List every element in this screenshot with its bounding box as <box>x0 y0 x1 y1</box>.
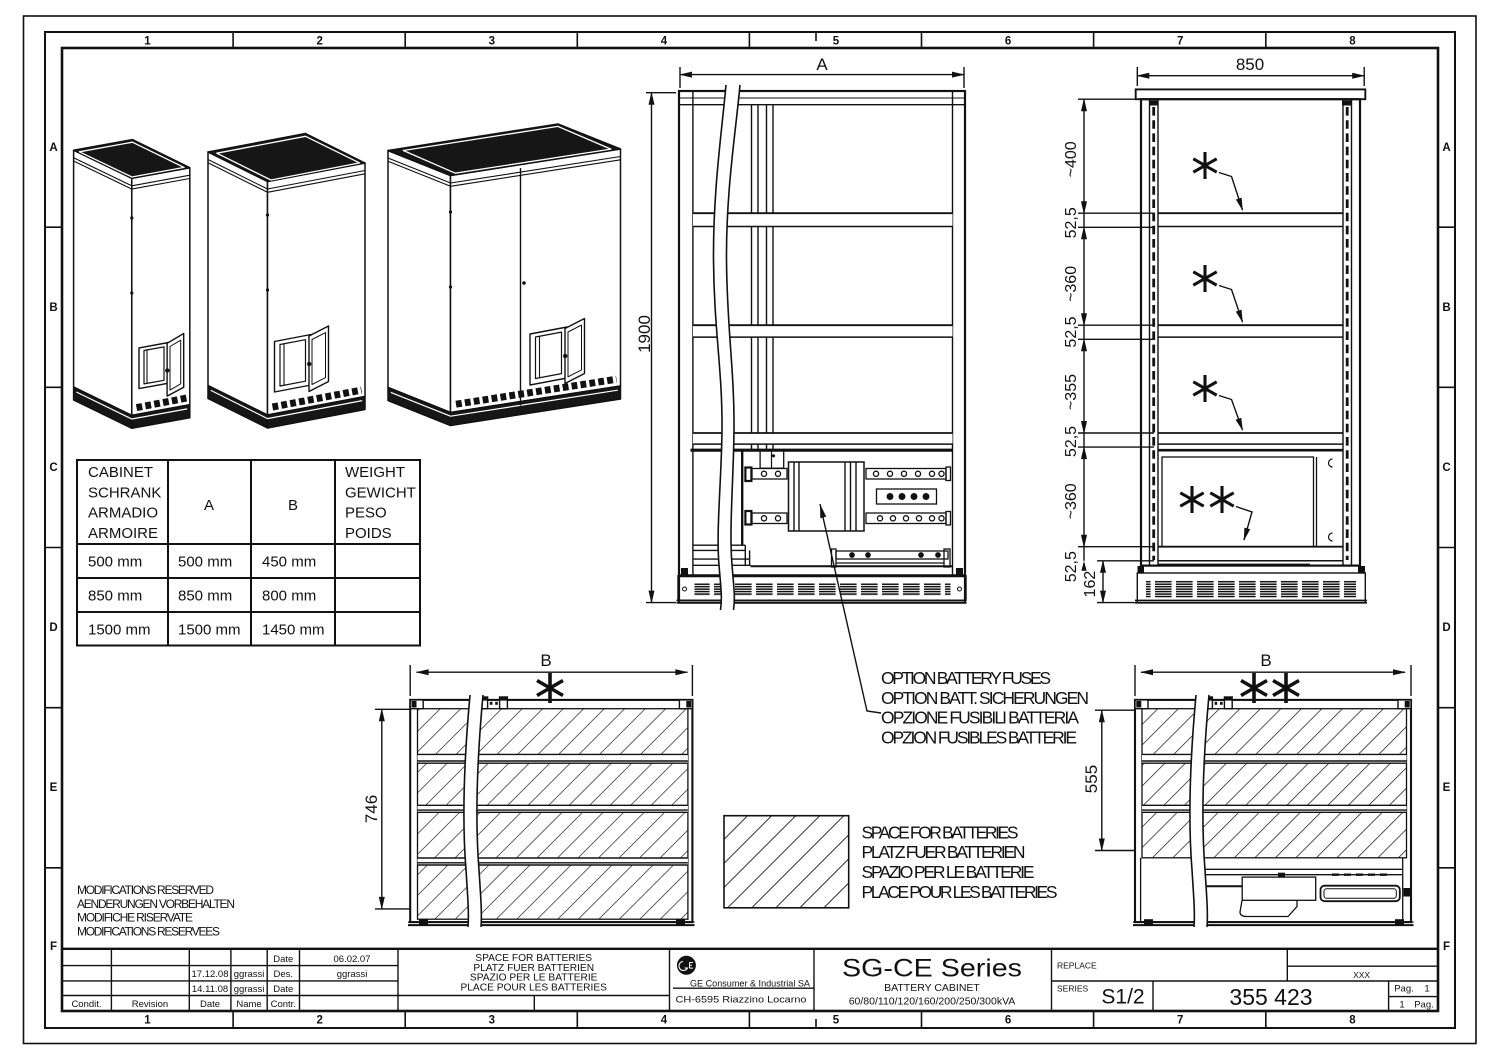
svg-text:Revision: Revision <box>132 999 168 1010</box>
svg-text:Date: Date <box>200 999 220 1010</box>
svg-text:60/80/110/120/160/200/250/300k: 60/80/110/120/160/200/250/300kVA <box>849 996 1016 1008</box>
svg-text:CABINET: CABINET <box>88 464 153 481</box>
svg-text:4: 4 <box>661 1015 668 1027</box>
svg-text:ggrassi: ggrassi <box>234 984 265 995</box>
svg-text:52,5: 52,5 <box>1063 426 1080 457</box>
svg-text:Pag.: Pag. <box>1394 984 1414 995</box>
svg-text:GEWICHT: GEWICHT <box>345 484 416 501</box>
svg-text:MODIFICATIONS RESERVED: MODIFICATIONS RESERVED <box>77 883 214 897</box>
svg-text:E: E <box>1443 782 1451 794</box>
svg-text:4: 4 <box>661 36 668 48</box>
svg-text:Des.: Des. <box>274 969 294 980</box>
svg-text:OPTION BATT. SICHERUNGEN: OPTION BATT. SICHERUNGEN <box>881 688 1089 708</box>
svg-text:OPTION BATTERY FUSES: OPTION BATTERY FUSES <box>881 668 1051 688</box>
svg-text:555: 555 <box>1082 765 1101 793</box>
svg-text:~360: ~360 <box>1063 266 1080 302</box>
svg-text:ggrassi: ggrassi <box>337 969 368 980</box>
svg-text:5: 5 <box>833 1015 840 1027</box>
svg-text:CH-6595 Riazzino Locarno: CH-6595 Riazzino Locarno <box>676 995 807 1006</box>
svg-text:850 mm: 850 mm <box>88 588 142 605</box>
svg-text:Pag.: Pag. <box>1414 1000 1434 1011</box>
svg-text:B: B <box>1260 651 1271 670</box>
svg-text:OPZION FUSIBLES BATTERIE: OPZION FUSIBLES BATTERIE <box>881 727 1077 747</box>
svg-text:1500 mm: 1500 mm <box>88 622 151 639</box>
svg-text:SERIES: SERIES <box>1057 984 1089 994</box>
svg-text:746: 746 <box>362 795 381 823</box>
svg-text:A: A <box>816 55 828 74</box>
svg-text:1500 mm: 1500 mm <box>178 622 241 639</box>
svg-text:~360: ~360 <box>1063 483 1080 519</box>
svg-text:F: F <box>50 941 57 953</box>
svg-text:MODIFICHE RISERVATE: MODIFICHE RISERVATE <box>77 911 193 925</box>
svg-text:Name: Name <box>236 999 261 1010</box>
svg-text:C: C <box>1442 462 1450 474</box>
svg-text:SG-CE Series: SG-CE Series <box>842 955 1022 983</box>
svg-text:850 mm: 850 mm <box>178 588 232 605</box>
svg-text:B: B <box>49 302 57 314</box>
svg-text:1: 1 <box>1424 984 1429 995</box>
svg-text:AENDERUNGEN VORBEHALTEN: AENDERUNGEN VORBEHALTEN <box>77 897 235 911</box>
svg-text:A: A <box>204 497 214 514</box>
svg-text:~400: ~400 <box>1063 141 1080 177</box>
svg-text:D: D <box>1442 622 1450 634</box>
svg-text:B: B <box>1442 302 1450 314</box>
svg-text:3: 3 <box>489 1015 495 1027</box>
svg-text:17.12.08: 17.12.08 <box>192 969 229 980</box>
svg-text:8: 8 <box>1349 36 1356 48</box>
svg-text:850: 850 <box>1236 55 1264 74</box>
svg-text:Condit.: Condit. <box>71 999 101 1010</box>
svg-text:52,5: 52,5 <box>1063 551 1080 582</box>
svg-text:B: B <box>288 497 298 514</box>
svg-text:D: D <box>49 622 57 634</box>
svg-text:SPAZIO PER LE BATTERIE: SPAZIO PER LE BATTERIE <box>862 862 1035 882</box>
svg-text:ARMOIRE: ARMOIRE <box>88 525 158 542</box>
svg-text:B: B <box>540 651 551 670</box>
svg-text:355 423: 355 423 <box>1229 984 1312 1010</box>
svg-text:E: E <box>50 782 58 794</box>
svg-text:S1/2: S1/2 <box>1101 986 1144 1009</box>
svg-text:3: 3 <box>489 36 495 48</box>
svg-text:A: A <box>1442 142 1450 154</box>
svg-text:1: 1 <box>144 36 151 48</box>
svg-text:500 mm: 500 mm <box>88 554 142 571</box>
svg-text:6: 6 <box>1005 1015 1011 1027</box>
svg-text:7: 7 <box>1177 36 1183 48</box>
svg-text:Date: Date <box>273 984 293 995</box>
svg-text:52,5: 52,5 <box>1063 207 1080 238</box>
svg-text:1450 mm: 1450 mm <box>262 622 325 639</box>
svg-text:7: 7 <box>1177 1015 1183 1027</box>
svg-text:OPZIONE FUSIBILI BATTERIA: OPZIONE FUSIBILI BATTERIA <box>881 708 1079 728</box>
svg-text:POIDS: POIDS <box>345 525 392 542</box>
svg-text:C: C <box>49 462 57 474</box>
svg-text:8: 8 <box>1349 1015 1356 1027</box>
svg-text:1900: 1900 <box>635 315 654 353</box>
svg-text:PESO: PESO <box>345 505 387 522</box>
svg-text:Contr.: Contr. <box>271 999 296 1010</box>
svg-text:2: 2 <box>316 36 322 48</box>
svg-text:A: A <box>49 142 57 154</box>
svg-text:2: 2 <box>316 1015 322 1027</box>
svg-text:1: 1 <box>144 1015 151 1027</box>
svg-text:WEIGHT: WEIGHT <box>345 464 405 481</box>
svg-text:ggrassi: ggrassi <box>234 969 265 980</box>
svg-text:MODIFICATIONS RESERVEES: MODIFICATIONS RESERVEES <box>77 925 220 939</box>
svg-text:~355: ~355 <box>1063 374 1080 410</box>
svg-text:5: 5 <box>833 36 840 48</box>
svg-text:52,5: 52,5 <box>1063 316 1080 347</box>
svg-text:PLATZ FUER BATTERIEN: PLATZ FUER BATTERIEN <box>862 842 1026 862</box>
svg-text:BATTERY CABINET: BATTERY CABINET <box>884 982 980 994</box>
svg-text:500 mm: 500 mm <box>178 554 232 571</box>
svg-text:ARMADIO: ARMADIO <box>88 505 158 522</box>
svg-text:XXX: XXX <box>1353 970 1370 980</box>
svg-text:Date: Date <box>273 954 293 965</box>
svg-text:SPACE FOR BATTERIES: SPACE FOR BATTERIES <box>862 822 1019 842</box>
svg-text:06.02.07: 06.02.07 <box>334 954 371 965</box>
svg-text:162: 162 <box>1082 571 1099 598</box>
svg-text:GE Consumer & Industrial SA: GE Consumer & Industrial SA <box>690 979 810 989</box>
svg-text:6: 6 <box>1005 36 1011 48</box>
svg-text:1: 1 <box>1399 1000 1404 1011</box>
svg-text:SCHRANK: SCHRANK <box>88 484 161 501</box>
svg-text:REPLACE: REPLACE <box>1057 961 1097 971</box>
svg-text:800 mm: 800 mm <box>262 588 316 605</box>
svg-text:PLACE POUR LES BATTERIES: PLACE POUR LES BATTERIES <box>862 882 1058 902</box>
svg-text:14.11.08: 14.11.08 <box>192 984 228 995</box>
svg-text:450 mm: 450 mm <box>262 554 316 571</box>
svg-text:PLACE POUR LES BATTERIES: PLACE POUR LES BATTERIES <box>460 983 607 994</box>
svg-text:F: F <box>1443 941 1450 953</box>
